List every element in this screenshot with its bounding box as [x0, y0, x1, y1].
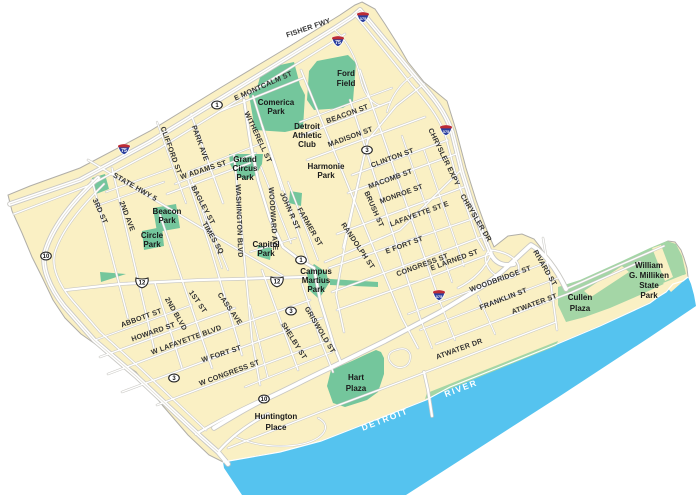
svg-text:Comerica: Comerica — [258, 98, 295, 107]
svg-text:G. Milliken: G. Milliken — [629, 271, 669, 280]
svg-text:375: 375 — [360, 16, 367, 21]
svg-text:Club: Club — [298, 140, 316, 149]
svg-text:Ford: Ford — [337, 69, 355, 78]
svg-text:10: 10 — [261, 397, 268, 403]
svg-text:Park: Park — [236, 173, 254, 182]
svg-text:12: 12 — [139, 281, 146, 287]
svg-text:Circus: Circus — [233, 164, 258, 173]
svg-text:Martius: Martius — [302, 276, 331, 285]
svg-text:Plaza: Plaza — [346, 384, 367, 393]
svg-text:Harmonie: Harmonie — [308, 162, 345, 171]
svg-text:75: 75 — [335, 40, 341, 46]
svg-text:Athletic: Athletic — [292, 131, 322, 140]
svg-text:Detroit: Detroit — [294, 122, 320, 131]
svg-text:375: 375 — [443, 129, 450, 134]
svg-text:Capitol: Capitol — [252, 240, 279, 249]
svg-text:Park: Park — [307, 285, 325, 294]
svg-text:Grand: Grand — [233, 155, 257, 164]
svg-text:State: State — [639, 281, 659, 290]
svg-text:375: 375 — [436, 294, 443, 299]
svg-text:Huntington: Huntington — [255, 412, 298, 421]
svg-text:75: 75 — [121, 148, 127, 154]
svg-text:Campus: Campus — [300, 267, 332, 276]
svg-text:Hart: Hart — [348, 373, 364, 382]
svg-text:Park: Park — [257, 249, 275, 258]
svg-text:Beacon: Beacon — [153, 207, 182, 216]
svg-text:12: 12 — [274, 280, 281, 286]
svg-text:Field: Field — [337, 79, 356, 88]
svg-text:Plaza: Plaza — [570, 304, 591, 313]
svg-text:Cullen: Cullen — [568, 293, 593, 302]
svg-text:Park: Park — [143, 240, 161, 249]
svg-text:William: William — [635, 261, 663, 270]
svg-text:Park: Park — [158, 216, 176, 225]
svg-text:Park: Park — [640, 291, 658, 300]
svg-text:10: 10 — [43, 254, 50, 260]
svg-text:Park: Park — [267, 107, 285, 116]
svg-text:Place: Place — [266, 423, 287, 432]
svg-text:Park: Park — [317, 171, 335, 180]
svg-text:Circle: Circle — [141, 231, 164, 240]
